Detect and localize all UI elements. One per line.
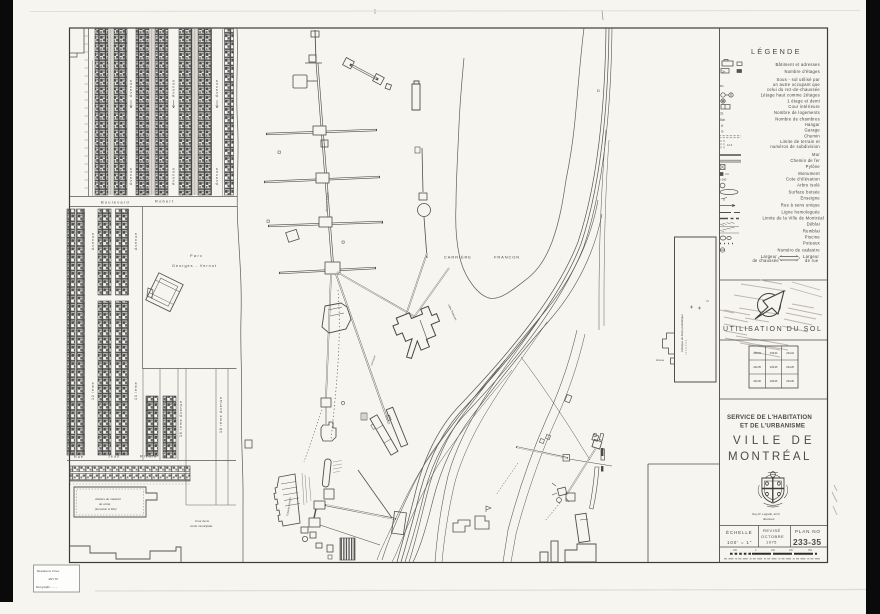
svg-text:Cote d'élévation: Cote d'élévation <box>786 177 820 182</box>
svg-text:Hangar: Hangar <box>805 122 821 127</box>
svg-text:SERVICE DE L'HABITATION: SERVICE DE L'HABITATION <box>727 414 812 421</box>
svg-text:18 ième Avenue: 18 ième Avenue <box>219 396 223 433</box>
svg-text:celui du rez-de-chaussée: celui du rez-de-chaussée <box>767 87 820 92</box>
svg-text:232-36: 232-36 <box>753 379 761 383</box>
svg-text:MONTRÉAL: MONTRÉAL <box>728 450 812 463</box>
svg-text:(Houston & Fils): (Houston & Fils) <box>95 507 117 511</box>
svg-text:D: D <box>597 88 600 93</box>
svg-text:12 ième: 12 ième <box>91 382 95 400</box>
svg-text:Avenue: Avenue <box>172 167 176 185</box>
svg-text:13 ième: 13 ième <box>134 382 138 400</box>
svg-text:Arbre isolé: Arbre isolé <box>797 183 820 188</box>
svg-text:FRANCON: FRANCON <box>494 255 520 260</box>
svg-text:Surface boisée: Surface boisée <box>788 190 820 195</box>
svg-text:Avenue: Avenue <box>129 167 133 185</box>
svg-text:Mur: Mur <box>812 152 820 157</box>
svg-text:voirie municipale: voirie municipale <box>190 524 213 528</box>
svg-text:233-35: 233-35 <box>770 365 778 369</box>
svg-text:1étage haut comme 2étages: 1étage haut comme 2étages <box>761 93 820 98</box>
svg-text:Jean: Jean <box>108 455 120 459</box>
svg-text:Annexe: Annexe <box>656 359 665 362</box>
svg-text:VILLE DE: VILLE DE <box>733 435 816 447</box>
svg-text:de rue: de rue <box>805 258 819 263</box>
svg-text:Avenue: Avenue <box>215 79 219 97</box>
svg-text:Nombre de logements: Nombre de logements <box>774 110 820 115</box>
svg-text:su: su <box>720 84 724 88</box>
svg-text:+180: +180 <box>720 178 727 182</box>
svg-text:PLAN NO: PLAN NO <box>795 529 821 534</box>
svg-text:Chemin de fer: Chemin de fer <box>790 158 820 163</box>
svg-text:Limite de la Ville de Montréal: Limite de la Ville de Montréal <box>763 216 825 221</box>
svg-text:Rivard: Rivard <box>140 455 157 459</box>
svg-text:Avenue: Avenue <box>215 167 219 185</box>
svg-text:300: 300 <box>808 549 813 552</box>
svg-text:234-36: 234-36 <box>786 379 794 383</box>
svg-text:LÉGENDE: LÉGENDE <box>751 47 802 56</box>
svg-text:100: 100 <box>771 549 776 552</box>
svg-text:5ch: 5ch <box>720 118 725 122</box>
svg-text:3L: 3L <box>720 112 724 116</box>
svg-text:Georges - Vernot: Georges - Vernot <box>172 264 217 268</box>
svg-text:Numéro de cadastre: Numéro de cadastre <box>778 248 821 253</box>
svg-text:Piscine: Piscine <box>805 235 821 240</box>
svg-text:directeur: directeur <box>763 517 775 521</box>
svg-text:1 étage et demi: 1 étage et demi <box>787 99 820 104</box>
svg-text:233-34: 233-34 <box>770 351 778 355</box>
svg-text:Monument: Monument <box>798 171 820 176</box>
svg-text:Ligne homologuée: Ligne homologuée <box>782 210 821 215</box>
svg-text:Déblai: Déblai <box>807 222 820 227</box>
svg-text:Poteaux: Poteaux <box>803 241 820 246</box>
svg-text:Dét graphi - - - -: Dét graphi - - - - <box>36 585 57 589</box>
svg-text:2h: 2h <box>722 69 726 73</box>
svg-text:1975: 1975 <box>766 540 777 545</box>
svg-text:232-34: 232-34 <box>753 351 761 355</box>
svg-text:de voirie: de voirie <box>99 502 111 506</box>
svg-text:233-36: 233-36 <box>770 379 778 383</box>
svg-text:Remblai: Remblai <box>803 229 820 234</box>
svg-text:UTILISATION DU SOL: UTILISATION DU SOL <box>723 326 822 333</box>
svg-text:Guy R. Legault, arch.: Guy R. Legault, arch. <box>752 512 781 516</box>
svg-text:Cour de la: Cour de la <box>195 519 209 523</box>
svg-text:Avenue: Avenue <box>134 232 138 250</box>
svg-text:REVISÉ: REVISÉ <box>763 528 781 533</box>
svg-text:CARRIÈRE: CARRIÈRE <box>444 255 472 260</box>
svg-text:ÉCHELLE: ÉCHELLE <box>726 529 753 535</box>
svg-text:100' = 1": 100' = 1" <box>727 540 752 545</box>
svg-text:numéros de subdivision: numéros de subdivision <box>770 144 820 149</box>
svg-text:OCTOBRE: OCTOBRE <box>761 534 784 539</box>
svg-text:234-35: 234-35 <box>786 365 794 369</box>
svg-text:Chemin: Chemin <box>804 134 820 139</box>
svg-text:Robert: Robert <box>155 199 174 204</box>
svg-text:16 ième Avenue: 16 ième Avenue <box>179 400 183 437</box>
svg-text:Rue: Rue <box>74 455 84 459</box>
svg-text:234-34: 234-34 <box>786 351 794 355</box>
svg-text:Avenue: Avenue <box>91 232 95 250</box>
svg-text:Dessiné le 2 Fev: Dessiné le 2 Fev <box>37 569 60 573</box>
svg-text:Enseigne: Enseigne <box>801 196 821 201</box>
svg-text:Boulevard: Boulevard <box>101 200 130 205</box>
svg-text:Parc: Parc <box>190 254 203 258</box>
svg-text:233-35: 233-35 <box>793 537 821 547</box>
svg-text:de chaussée: de chaussée <box>752 258 779 263</box>
svg-text:Nombre d'étages: Nombre d'étages <box>784 69 820 74</box>
svg-text:JAN 76: JAN 76 <box>48 577 58 581</box>
svg-text:ET DE L'URBANISME: ET DE L'URBANISME <box>740 423 805 430</box>
svg-text:Rue à sens unique: Rue à sens unique <box>781 203 821 208</box>
svg-text:Avenue: Avenue <box>172 79 176 97</box>
svg-text:200: 200 <box>789 549 794 552</box>
svg-text:232-35: 232-35 <box>753 365 761 369</box>
svg-text:Cour intérieure: Cour intérieure <box>788 104 820 109</box>
svg-text:Fabrique de béton préfabriq: Fabrique de béton préfabriqué <box>680 314 684 352</box>
svg-text:Avenue: Avenue <box>129 79 133 97</box>
svg-text:Bâtiment et adresses: Bâtiment et adresses <box>776 62 820 67</box>
svg-text:Nombre de chambres: Nombre de chambres <box>775 117 820 122</box>
svg-text:Pylône: Pylône <box>806 164 821 169</box>
svg-text:Garage: Garage <box>805 128 821 133</box>
svg-text:12-3: 12-3 <box>727 143 733 147</box>
svg-text:Ateliers de matériel: Ateliers de matériel <box>94 497 121 501</box>
svg-text:100: 100 <box>733 549 738 552</box>
